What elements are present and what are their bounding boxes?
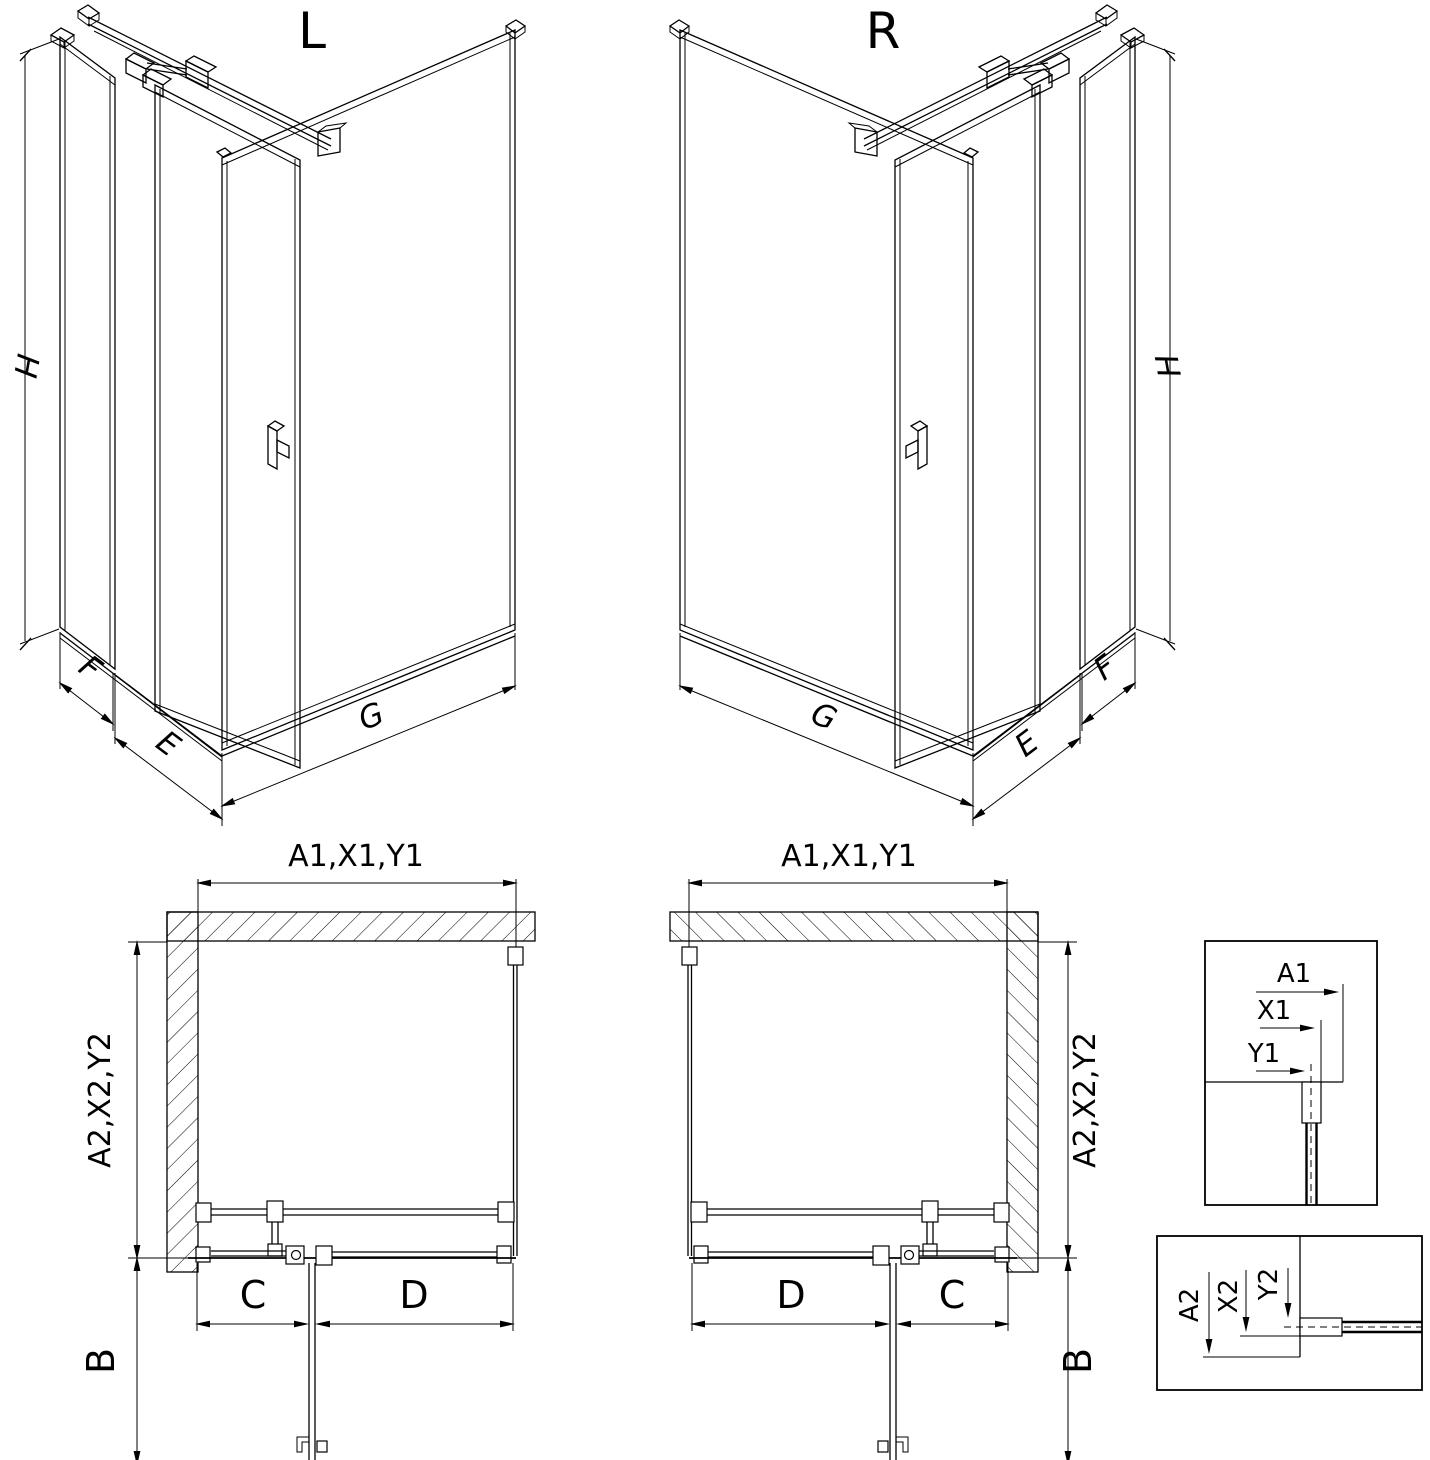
dim-label-g-right: G: [806, 696, 842, 738]
plan-left-side-label: A2,X2,Y2: [83, 1032, 118, 1168]
drawing-sheet: L H F E G R H F E G A1,X1,Y1 A2,X2,Y2 C …: [0, 0, 1430, 1460]
plan-left-d-label: D: [399, 1273, 428, 1317]
plan-right-side-label: A2,X2,Y2: [1068, 1032, 1103, 1168]
plan-right-c-label: C: [939, 1273, 966, 1317]
dim-label-f-left: F: [72, 648, 109, 688]
plan-view-left: A1,X1,Y1 A2,X2,Y2 C D B: [79, 839, 535, 1460]
shower-enclosure-diagram: L H F E G R H F E G A1,X1,Y1 A2,X2,Y2 C …: [0, 0, 1430, 1460]
detail-x1-label: X1: [1257, 996, 1291, 1026]
dim-label-g-left: G: [353, 696, 389, 738]
detail-box-horizontal: A1 X1 Y1: [1205, 941, 1377, 1205]
dim-label-h-right: H: [1149, 351, 1189, 380]
detail-a2-label: A2: [1175, 1288, 1205, 1322]
plan-left-top-label: A1,X1,Y1: [288, 839, 424, 874]
dim-label-h-left: H: [6, 351, 46, 380]
plan-right-d-label: D: [776, 1273, 805, 1317]
detail-y1-label: Y1: [1247, 1039, 1280, 1069]
detail-box-vertical: A2 X2 Y2: [1157, 1236, 1422, 1390]
plan-left-c-label: C: [240, 1273, 267, 1317]
detail-y2-label: Y2: [1254, 1268, 1284, 1301]
plan-right-b-label: B: [1056, 1348, 1100, 1374]
detail-x2-label: X2: [1214, 1279, 1244, 1313]
dim-label-f-right: F: [1087, 648, 1124, 688]
iso-left-title: L: [298, 2, 326, 60]
iso-right-title: R: [866, 2, 901, 60]
plan-right-top-label: A1,X1,Y1: [781, 839, 917, 874]
iso-view-left: L H F E G: [6, 2, 525, 826]
detail-a1-label: A1: [1277, 959, 1311, 989]
plan-left-b-label: B: [79, 1348, 123, 1374]
iso-view-right: R H F E G: [670, 2, 1189, 826]
plan-view-right: A1,X1,Y1 A2,X2,Y2 D C B: [670, 839, 1103, 1460]
